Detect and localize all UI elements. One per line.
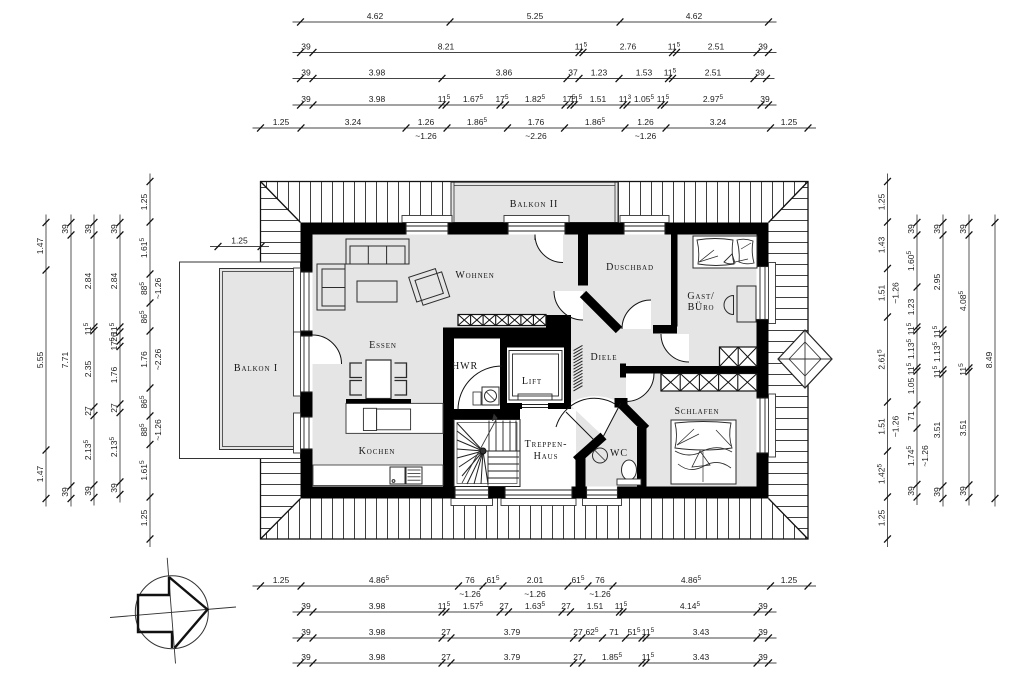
svg-text:~1.26: ~1.26 — [459, 589, 481, 599]
svg-text:1.47: 1.47 — [35, 237, 45, 254]
svg-text:39: 39 — [301, 67, 311, 77]
svg-text:39: 39 — [301, 41, 311, 51]
svg-text:8.49: 8.49 — [984, 351, 994, 368]
svg-text:2.84: 2.84 — [83, 272, 93, 289]
svg-text:4.62: 4.62 — [686, 11, 703, 21]
svg-text:~1.26: ~1.26 — [153, 419, 163, 441]
svg-text:39: 39 — [301, 94, 311, 104]
svg-text:2.35: 2.35 — [83, 360, 93, 377]
svg-text:Duschbad: Duschbad — [606, 262, 654, 273]
svg-text:1.23: 1.23 — [591, 67, 608, 77]
svg-text:Schlafen: Schlafen — [674, 406, 719, 417]
svg-text:39: 39 — [83, 224, 93, 234]
svg-text:8.21: 8.21 — [438, 41, 455, 51]
svg-text:~1.26: ~1.26 — [153, 277, 163, 299]
svg-text:37: 37 — [568, 67, 578, 77]
svg-text:1.25: 1.25 — [273, 575, 290, 585]
svg-text:39: 39 — [60, 224, 70, 234]
svg-text:1.51: 1.51 — [590, 94, 607, 104]
svg-text:39: 39 — [758, 652, 768, 662]
svg-text:39: 39 — [906, 486, 916, 496]
svg-text:~1.26: ~1.26 — [589, 589, 611, 599]
svg-text:1.25: 1.25 — [139, 193, 149, 210]
svg-text:5.55: 5.55 — [35, 351, 45, 368]
svg-text:3.98: 3.98 — [369, 67, 386, 77]
svg-text:1.76: 1.76 — [139, 351, 149, 368]
svg-text:27: 27 — [83, 406, 93, 416]
svg-text:3.79: 3.79 — [504, 652, 521, 662]
svg-text:3.98: 3.98 — [369, 94, 386, 104]
svg-text:2.95: 2.95 — [932, 273, 942, 290]
svg-text:27: 27 — [499, 601, 509, 611]
svg-text:2.84: 2.84 — [109, 272, 119, 289]
svg-text:Balkon II: Balkon II — [510, 199, 558, 210]
svg-text:27: 27 — [573, 627, 583, 637]
svg-text:1.25: 1.25 — [876, 509, 886, 526]
svg-text:3.86: 3.86 — [496, 67, 513, 77]
svg-text:HWR: HWR — [452, 361, 478, 372]
svg-text:7.71: 7.71 — [60, 351, 70, 368]
svg-text:39: 39 — [109, 483, 119, 493]
svg-text:3.43: 3.43 — [693, 652, 710, 662]
svg-text:1.53: 1.53 — [636, 67, 653, 77]
svg-text:4.62: 4.62 — [367, 11, 384, 21]
svg-text:27: 27 — [561, 601, 571, 611]
svg-text:BÜro: BÜro — [688, 301, 715, 313]
svg-text:~1.26: ~1.26 — [415, 131, 437, 141]
svg-text:27: 27 — [441, 627, 451, 637]
svg-text:~2.26: ~2.26 — [153, 348, 163, 370]
svg-text:~1.26: ~1.26 — [920, 445, 930, 467]
svg-text:Kochen: Kochen — [359, 446, 396, 457]
svg-text:3.51: 3.51 — [932, 421, 942, 438]
svg-text:39: 39 — [758, 41, 768, 51]
svg-text:1.25: 1.25 — [231, 235, 248, 245]
svg-text:39: 39 — [301, 601, 311, 611]
svg-text:27: 27 — [441, 652, 451, 662]
svg-text:71: 71 — [609, 627, 619, 637]
svg-text:39: 39 — [958, 486, 968, 496]
svg-text:39: 39 — [83, 486, 93, 496]
svg-text:Haus: Haus — [534, 451, 559, 462]
svg-text:2.51: 2.51 — [705, 67, 722, 77]
svg-text:2.51: 2.51 — [708, 41, 725, 51]
svg-text:3.51: 3.51 — [958, 419, 968, 436]
svg-text:1.25: 1.25 — [781, 575, 798, 585]
svg-text:1.76: 1.76 — [109, 366, 119, 383]
svg-text:1.26: 1.26 — [418, 117, 435, 127]
svg-text:39: 39 — [301, 652, 311, 662]
svg-text:Diele: Diele — [591, 352, 618, 363]
svg-text:1.05: 1.05 — [906, 377, 916, 394]
svg-text:1.51: 1.51 — [876, 284, 886, 301]
svg-text:3.98: 3.98 — [369, 601, 386, 611]
svg-text:1.43: 1.43 — [876, 236, 886, 253]
svg-text:1.25: 1.25 — [139, 509, 149, 526]
svg-text:Treppen-: Treppen- — [525, 439, 568, 450]
svg-text:1.51: 1.51 — [587, 601, 604, 611]
svg-text:71: 71 — [906, 411, 916, 421]
svg-text:3.24: 3.24 — [345, 117, 362, 127]
svg-text:2.01: 2.01 — [527, 575, 544, 585]
svg-text:39: 39 — [758, 601, 768, 611]
svg-text:39: 39 — [758, 627, 768, 637]
svg-text:2.76: 2.76 — [620, 41, 637, 51]
svg-text:Lift: Lift — [522, 376, 542, 387]
svg-text:3.98: 3.98 — [369, 652, 386, 662]
svg-text:WC: WC — [610, 448, 628, 459]
svg-text:1.51: 1.51 — [876, 418, 886, 435]
svg-text:Balkon I: Balkon I — [234, 363, 278, 374]
svg-text:Wohnen: Wohnen — [455, 270, 494, 281]
svg-text:3.98: 3.98 — [369, 627, 386, 637]
svg-text:3.43: 3.43 — [693, 627, 710, 637]
svg-text:1.76: 1.76 — [528, 117, 545, 127]
svg-text:~1.26: ~1.26 — [891, 415, 901, 437]
svg-text:39: 39 — [932, 224, 942, 234]
svg-text:39: 39 — [301, 627, 311, 637]
svg-text:39: 39 — [760, 94, 770, 104]
svg-text:~1.26: ~1.26 — [891, 282, 901, 304]
svg-text:39: 39 — [60, 487, 70, 497]
svg-text:39: 39 — [109, 224, 119, 234]
svg-text:3.24: 3.24 — [710, 117, 727, 127]
svg-text:39: 39 — [755, 67, 765, 77]
svg-text:76: 76 — [465, 575, 475, 585]
svg-text:5.25: 5.25 — [527, 11, 544, 21]
svg-text:3.79: 3.79 — [504, 627, 521, 637]
svg-text:76: 76 — [595, 575, 605, 585]
svg-text:1.25: 1.25 — [273, 117, 290, 127]
svg-text:~1.26: ~1.26 — [635, 131, 657, 141]
svg-text:39: 39 — [906, 224, 916, 234]
svg-text:1.47: 1.47 — [35, 465, 45, 482]
svg-text:Gast/: Gast/ — [687, 291, 714, 302]
svg-text:39: 39 — [958, 224, 968, 234]
svg-text:27: 27 — [109, 403, 119, 413]
svg-text:1.23: 1.23 — [906, 298, 916, 315]
svg-text:1.25: 1.25 — [876, 193, 886, 210]
svg-text:1.26: 1.26 — [637, 117, 654, 127]
svg-text:39: 39 — [932, 487, 942, 497]
svg-text:1.25: 1.25 — [781, 117, 798, 127]
svg-text:Essen: Essen — [369, 340, 397, 351]
svg-text:27: 27 — [573, 652, 583, 662]
svg-text:~1.26: ~1.26 — [524, 589, 546, 599]
svg-text:~2.26: ~2.26 — [525, 131, 547, 141]
